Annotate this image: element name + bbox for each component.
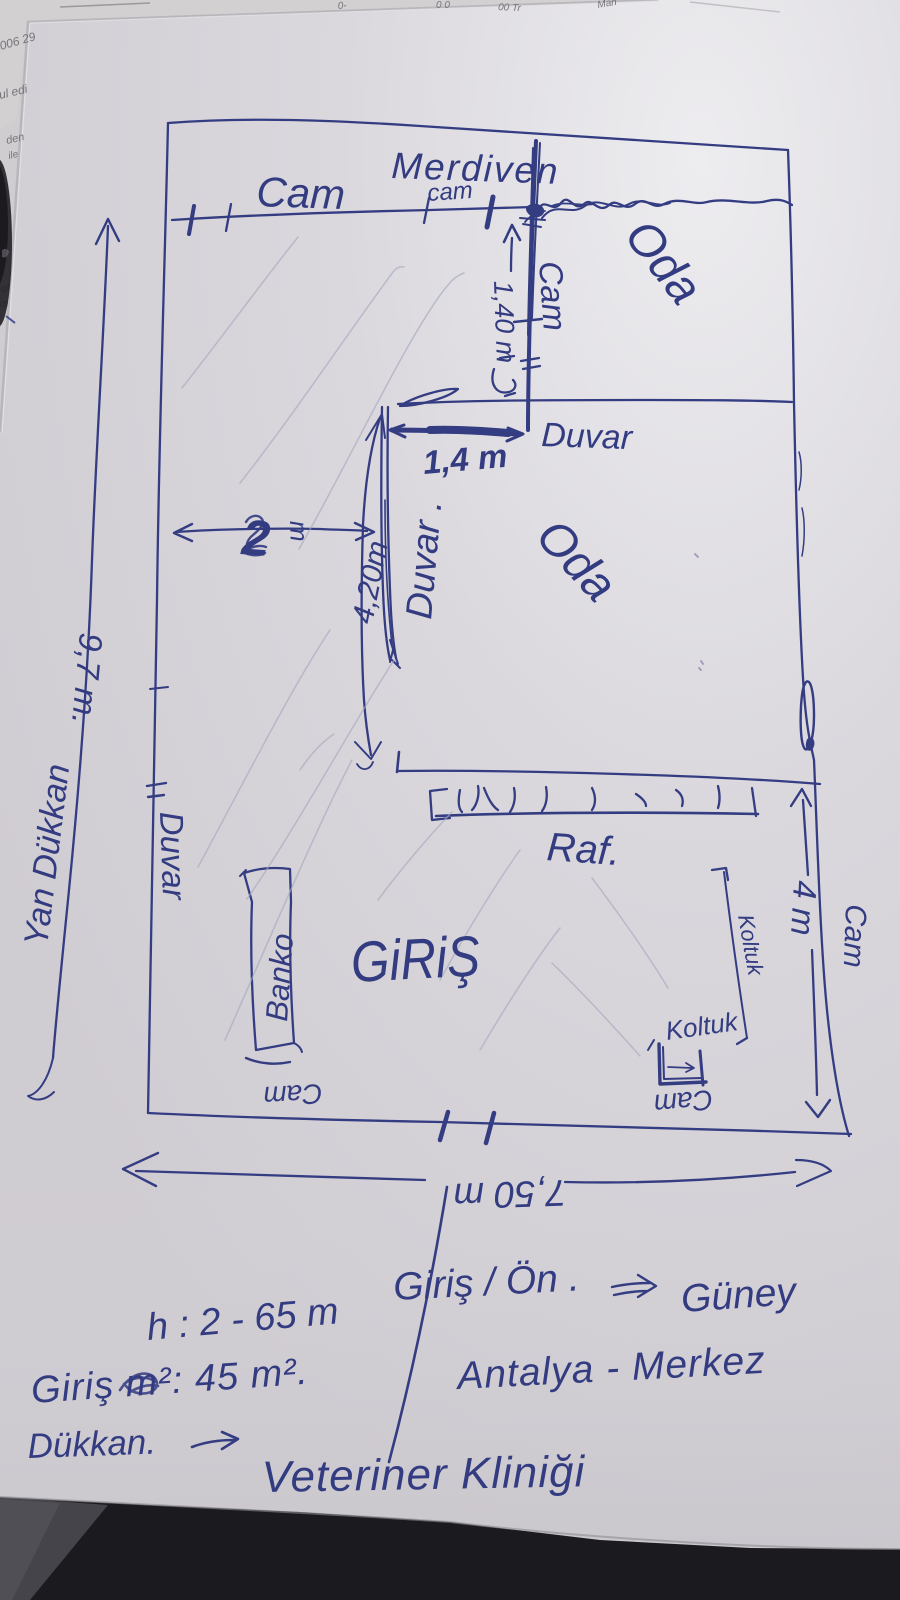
svg-text:Cam: Cam	[837, 904, 872, 968]
svg-text:Banko: Banko	[259, 932, 300, 1022]
svg-text:1,40 m: 1,40 m	[488, 280, 521, 364]
svg-text:Cam: Cam	[653, 1084, 715, 1120]
svg-text:1,4 m: 1,4 m	[421, 437, 508, 481]
svg-text:0 0: 0 0	[436, 0, 450, 11]
svg-text:0-: 0-	[337, 0, 347, 12]
svg-text:Cam: Cam	[532, 260, 574, 332]
svg-text:Cam: Cam	[256, 168, 346, 218]
svg-text:7,50 m: 7,50 m	[453, 1172, 567, 1217]
svg-text:Güney: Güney	[680, 1270, 800, 1321]
svg-text:Dükkan.: Dükkan.	[27, 1423, 157, 1466]
svg-text:Duvar: Duvar	[153, 811, 193, 902]
svg-text:4 m: 4 m	[784, 880, 824, 937]
svg-text:Cam: Cam	[263, 1078, 324, 1112]
svg-text:Raf.: Raf.	[545, 825, 621, 874]
svg-text:Duvar: Duvar	[541, 416, 635, 457]
svg-text:GiRiŞ: GiRiŞ	[349, 925, 481, 995]
svg-text:2: 2	[239, 509, 272, 567]
svg-text:00 Tr: 00 Tr	[498, 2, 522, 14]
svg-text:Veteriner Kliniği: Veteriner Kliniği	[261, 1447, 586, 1502]
svg-text:Merdiven: Merdiven	[391, 145, 561, 192]
svg-text:m: m	[284, 520, 313, 542]
